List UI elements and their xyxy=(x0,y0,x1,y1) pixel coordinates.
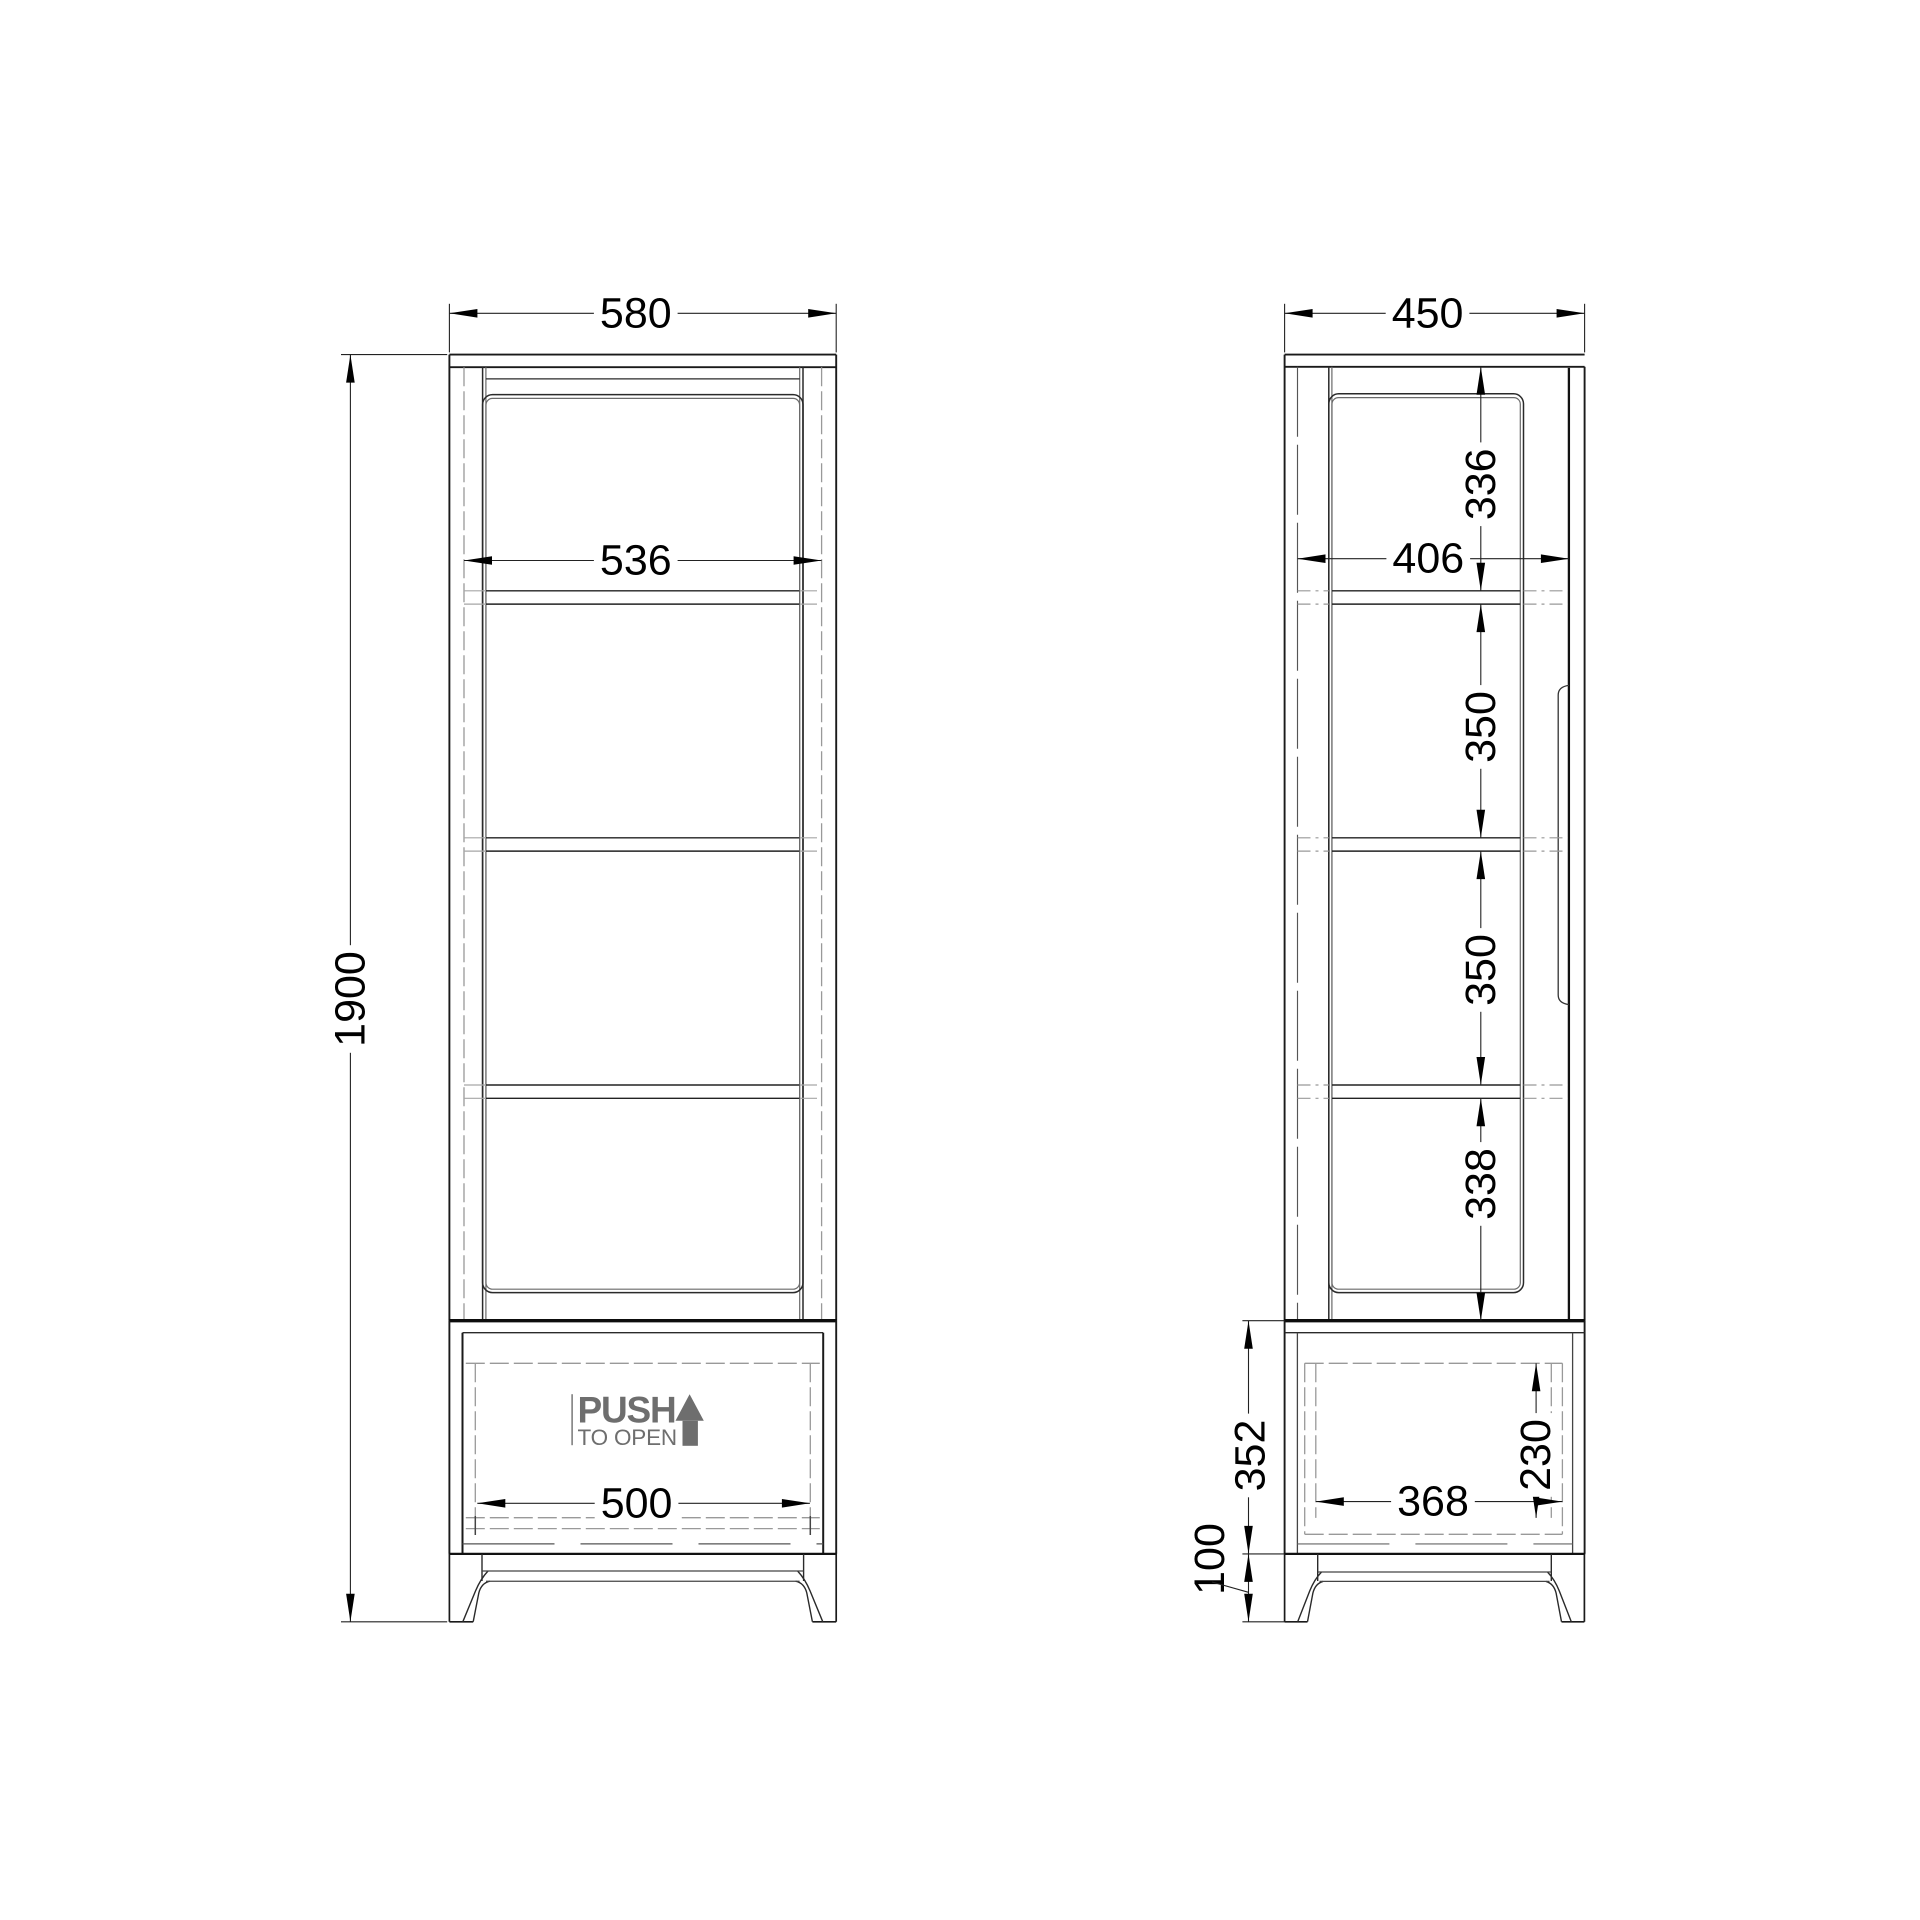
svg-text:350: 350 xyxy=(1457,691,1505,763)
svg-text:352: 352 xyxy=(1226,1420,1274,1492)
svg-text:1900: 1900 xyxy=(326,951,374,1047)
svg-text:336: 336 xyxy=(1457,448,1505,520)
svg-text:230: 230 xyxy=(1512,1419,1560,1491)
svg-text:368: 368 xyxy=(1397,1478,1469,1526)
svg-text:TO OPEN: TO OPEN xyxy=(578,1425,677,1450)
svg-text:450: 450 xyxy=(1392,289,1464,337)
svg-text:536: 536 xyxy=(600,537,672,585)
svg-text:580: 580 xyxy=(600,289,672,337)
svg-text:338: 338 xyxy=(1457,1148,1505,1220)
svg-text:500: 500 xyxy=(601,1479,673,1527)
svg-text:350: 350 xyxy=(1457,934,1505,1006)
svg-text:100: 100 xyxy=(1186,1523,1234,1595)
svg-text:406: 406 xyxy=(1392,535,1464,583)
